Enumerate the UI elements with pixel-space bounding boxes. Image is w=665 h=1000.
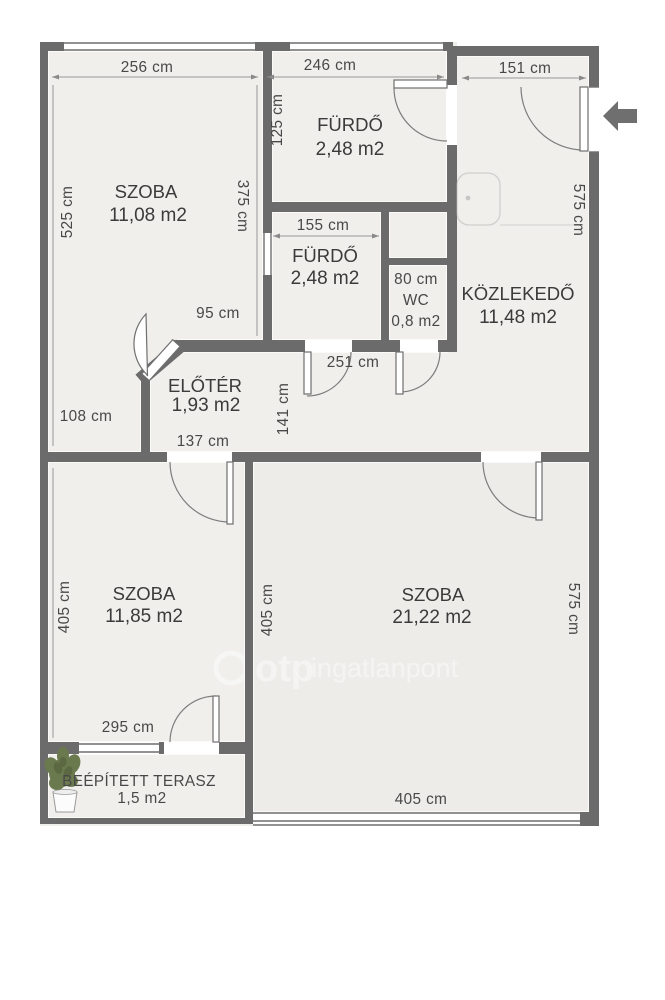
svg-text:155 cm: 155 cm [297, 217, 350, 234]
svg-text:525 cm: 525 cm [59, 186, 76, 239]
svg-text:WC: WC [403, 292, 429, 309]
svg-text:21,22 m2: 21,22 m2 [392, 607, 471, 628]
svg-text:405 cm: 405 cm [259, 584, 276, 637]
svg-text:1,5 m2: 1,5 m2 [117, 790, 166, 807]
svg-text:SZOBA: SZOBA [402, 584, 465, 605]
svg-text:246 cm: 246 cm [304, 57, 357, 74]
svg-text:FÜRDŐ: FÜRDŐ [317, 114, 383, 135]
svg-text:405 cm: 405 cm [56, 581, 73, 634]
svg-text:137 cm: 137 cm [177, 433, 230, 450]
svg-text:2,48 m2: 2,48 m2 [316, 139, 385, 160]
svg-text:KÖZLEKEDŐ: KÖZLEKEDŐ [461, 283, 574, 304]
svg-text:SZOBA: SZOBA [115, 181, 178, 202]
svg-text:256 cm: 256 cm [121, 59, 174, 76]
svg-text:11,08 m2: 11,08 m2 [109, 205, 187, 226]
svg-text:FÜRDŐ: FÜRDŐ [292, 245, 358, 266]
svg-text:otp: otp [255, 648, 314, 690]
svg-text:251 cm: 251 cm [327, 354, 380, 371]
svg-text:BEÉPÍTETT TERASZ: BEÉPÍTETT TERASZ [62, 773, 216, 790]
svg-text:575 cm: 575 cm [570, 184, 587, 237]
svg-text:ingatlanpont: ingatlanpont [311, 653, 459, 683]
svg-text:295 cm: 295 cm [102, 719, 155, 736]
svg-text:108 cm: 108 cm [60, 408, 113, 425]
svg-text:375 cm: 375 cm [234, 180, 251, 233]
svg-text:0,8 m2: 0,8 m2 [391, 313, 440, 330]
svg-text:575 cm: 575 cm [565, 583, 582, 636]
svg-text:SZOBA: SZOBA [113, 583, 176, 604]
svg-text:80 cm: 80 cm [394, 271, 438, 288]
svg-text:2,48 m2: 2,48 m2 [291, 268, 360, 289]
svg-text:ELŐTÉR: ELŐTÉR [168, 375, 242, 396]
svg-text:141 cm: 141 cm [275, 383, 292, 436]
svg-text:151 cm: 151 cm [499, 60, 552, 77]
svg-text:405 cm: 405 cm [395, 791, 448, 808]
svg-text:11,85 m2: 11,85 m2 [105, 606, 183, 627]
svg-text:125 cm: 125 cm [269, 94, 286, 147]
svg-text:1,93 m2: 1,93 m2 [172, 395, 241, 416]
svg-text:95 cm: 95 cm [196, 305, 240, 322]
svg-text:11,48 m2: 11,48 m2 [479, 307, 557, 328]
